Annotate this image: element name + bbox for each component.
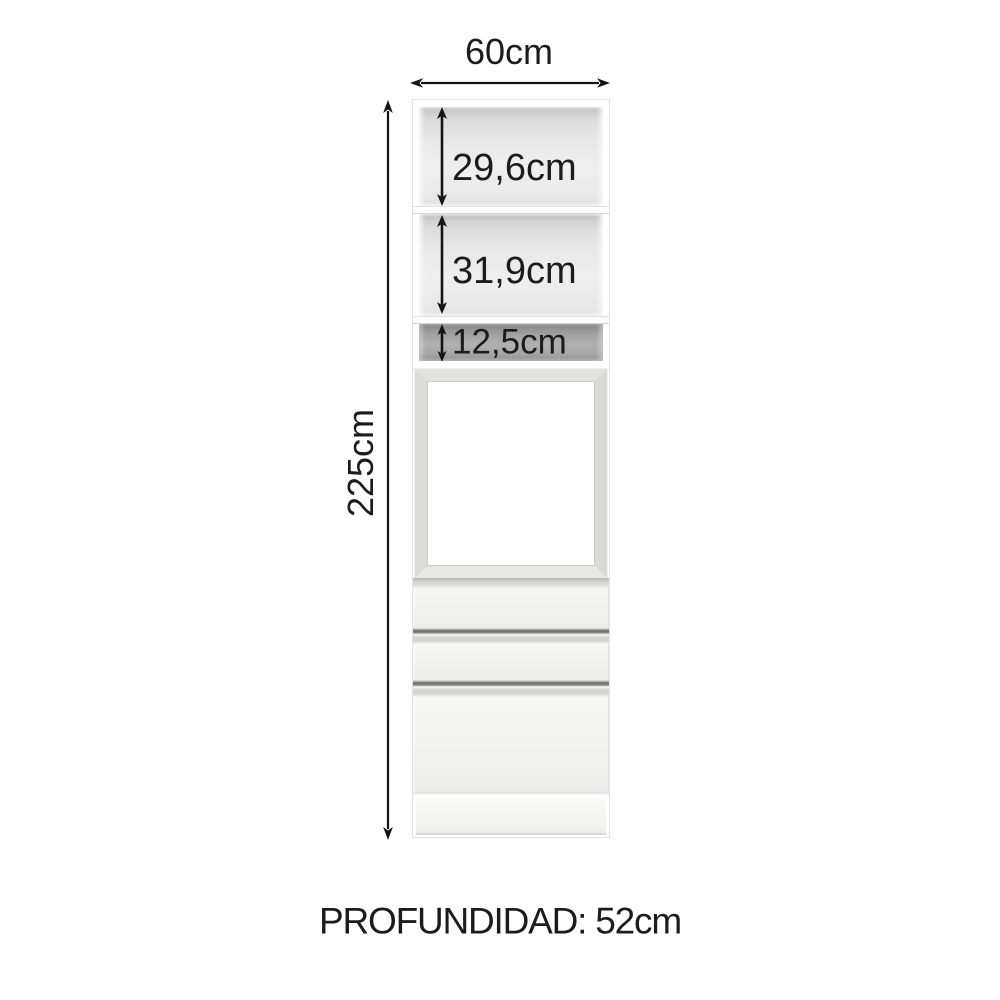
shelf-1-height-arrow-icon — [434, 106, 450, 207]
drawer-3-handle — [413, 680, 609, 697]
drawer-1 — [413, 588, 609, 628]
shelf-divider-1 — [413, 206, 609, 214]
cabinet-drawing: 29,6cm 31,9cm 12,5cm — [413, 100, 609, 837]
niche-height-label: 12,5cm — [452, 325, 567, 360]
shelf-2-height-arrow-icon — [434, 214, 450, 315]
drawer-2 — [413, 644, 609, 680]
oven-opening — [415, 369, 607, 578]
width-dimension-label: 60cm — [465, 34, 553, 70]
depth-dimension-label: PROFUNDIDAD: 52cm — [319, 903, 681, 940]
drawer-1-handle — [413, 578, 609, 588]
height-double-arrow-icon — [380, 99, 396, 841]
height-dimension-label: 225cm — [343, 409, 379, 517]
niche-height-arrow-icon — [434, 324, 450, 362]
shelf-1-height-label: 29,6cm — [452, 149, 577, 187]
drawer-2-handle — [413, 628, 609, 644]
divider-below-niche — [413, 361, 609, 369]
drawer-3 — [413, 697, 609, 792]
width-double-arrow-icon — [409, 75, 611, 91]
cabinet-dimension-diagram: 60cm 225cm 29,6cm 31,9cm — [0, 0, 1000, 1000]
shelf-2-height-label: 31,9cm — [452, 252, 577, 290]
kick-plate — [416, 797, 606, 835]
